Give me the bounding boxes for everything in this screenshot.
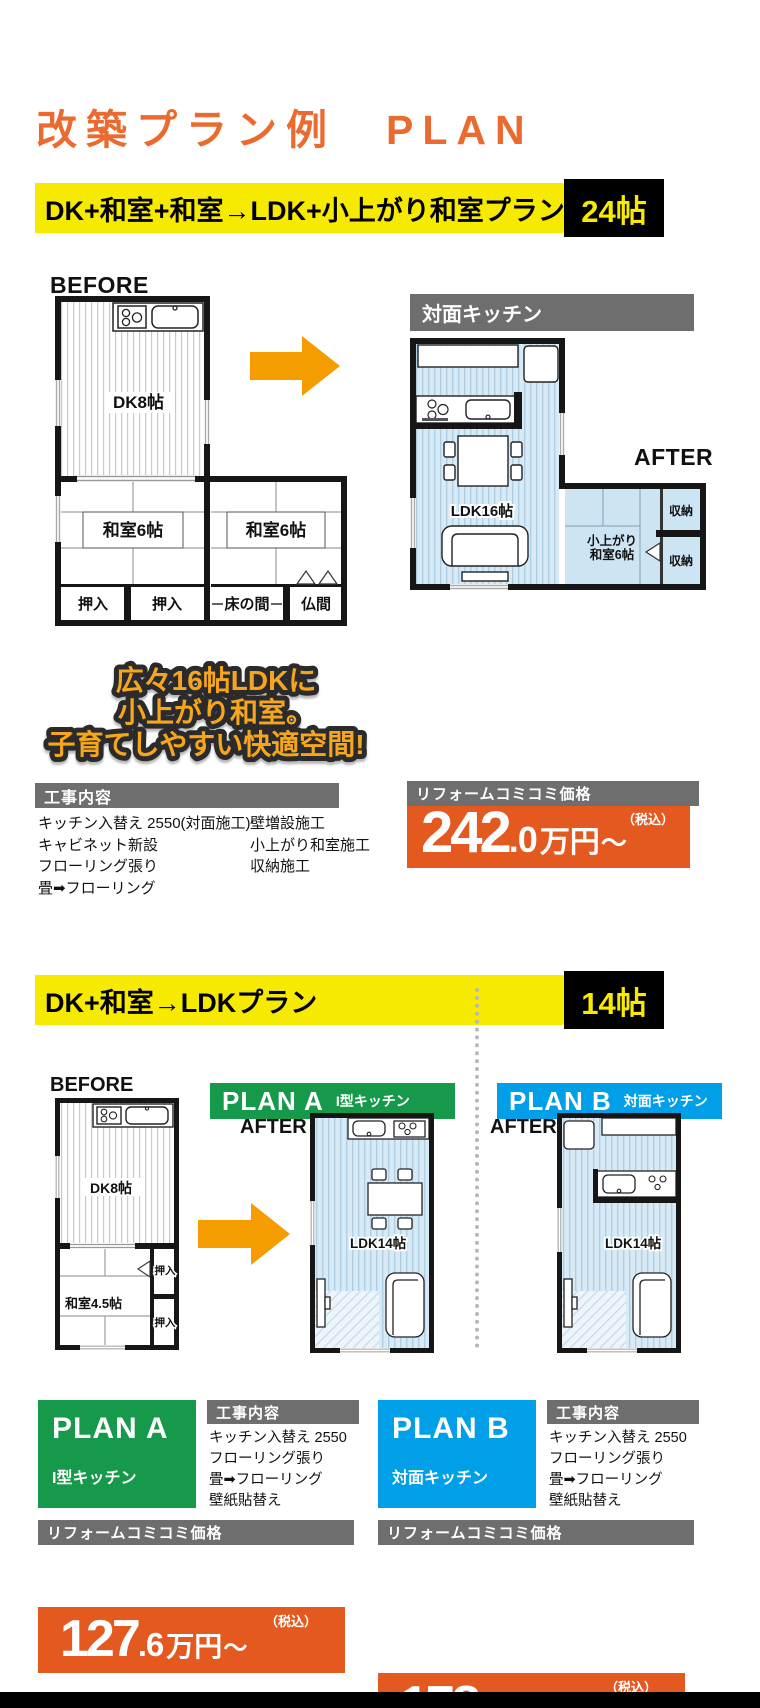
divider (475, 988, 479, 1348)
kitchen-unit-icon (93, 1104, 173, 1127)
page-title: 改築プラン例 PLAN (36, 96, 534, 156)
price-tilde: 〜 (601, 823, 627, 860)
room-label-washitsu1: 和室6帖 (103, 520, 163, 540)
price-unit: 万円 (540, 817, 600, 861)
price-unit: 万円 (166, 1625, 222, 1665)
section2-banner: DK+和室→LDKプラン 14帖 (35, 975, 660, 1025)
catch-copy: 広々16帖LDKに 小上がり和室。 子育てしやすい快適空間! (28, 650, 368, 765)
floorplan-plan-a: LDK14帖 (310, 1113, 434, 1353)
works-item: 壁紙貼替え (549, 1491, 687, 1512)
works-item: キャビネット新設 (38, 835, 251, 857)
floorplan-plan-b: LDK14帖 (557, 1113, 681, 1353)
floorplan-after-1: LDK16帖 小上がり 和室6帖 収納 収納 (410, 338, 706, 590)
before-label-1: BEFORE (50, 272, 149, 299)
room-label-ldk16: LDK16帖 (451, 502, 514, 520)
section2-banner-label: DK+和室→LDKプラン (35, 981, 317, 1020)
plan-a-type: I型キッチン (336, 1091, 410, 1111)
price-main: 127 (60, 1609, 138, 1669)
section1-banner: DK+和室+和室→LDK+小上がり和室プラン 24帖 (35, 183, 660, 233)
works-item: 畳➡フローリング (549, 1470, 687, 1491)
price-tilde: 〜 (223, 1628, 247, 1663)
plan-b-box-type: 対面キッチン (378, 1446, 536, 1488)
room-label-oshiire1: 押入 (155, 1264, 176, 1277)
room-label-koagari-2: 和室6帖 (589, 547, 635, 562)
works-header-1: 工事内容 (35, 783, 339, 808)
door-mark (138, 1261, 150, 1277)
room-label-oshiire1: 押入 (78, 595, 108, 613)
price-header-a: リフォームコミコミ価格 (38, 1520, 354, 1545)
works-item: キッチン入替え 2550 (209, 1428, 347, 1449)
kitchen-counter-icon (348, 1118, 429, 1139)
room-label-ldk14: LDK14帖 (350, 1235, 407, 1251)
room-label-tokonoma: 床の間 (224, 595, 269, 613)
works-item: 壁増設施工 (250, 813, 370, 835)
catch-line-3: 子育てしやすい快適空間! (47, 728, 364, 760)
room-label-ldk14: LDK14帖 (605, 1235, 662, 1251)
arrow-right-icon (198, 1203, 290, 1265)
catch-line-2: 小上がり和室。 (118, 696, 314, 728)
after-kitchen-tag: 対面キッチン (410, 294, 694, 331)
works-col1: キッチン入替え 2550(対面施工) キャビネット新設 フローリング張り 畳➡フ… (38, 813, 251, 899)
arrow-right-icon (250, 336, 340, 396)
works-item: フローリング張り (209, 1449, 347, 1470)
works-list-a: キッチン入替え 2550 フローリング張り 畳➡フローリング 壁紙貼替え (209, 1428, 347, 1512)
works-item: 収納施工 (250, 856, 370, 878)
section2-size-badge: 14帖 (564, 971, 664, 1029)
room-label-oshiire2: 押入 (155, 1316, 176, 1329)
room-label-storage2: 収納 (669, 553, 693, 568)
plan-a-name: PLAN A (210, 1086, 324, 1117)
room-label-storage1: 収納 (669, 503, 693, 518)
before-label-2: BEFORE (50, 1074, 133, 1097)
after-label-b: AFTER (490, 1116, 557, 1139)
works-item: 小上がり和室施工 (250, 835, 370, 857)
room-label-dk: DK8帖 (90, 1180, 132, 1196)
plan-b-type: 対面キッチン (624, 1091, 708, 1111)
catch-line-1: 広々16帖LDKに (116, 665, 317, 696)
price-decimal: .0 (509, 819, 537, 861)
plan-b-box-name: PLAN B (378, 1400, 536, 1446)
works-header-b: 工事内容 (547, 1400, 699, 1424)
plan-a-box-type: I型キッチン (38, 1446, 196, 1488)
room-label-oshiire2: 押入 (152, 595, 182, 613)
room-label-dk: DK8帖 (113, 392, 164, 412)
works-item: 畳➡フローリング (209, 1470, 347, 1491)
works-item: フローリング張り (549, 1449, 687, 1470)
works-header-a: 工事内容 (207, 1400, 359, 1424)
tax-note: （税込） (622, 809, 674, 828)
footer-bar (0, 1692, 760, 1708)
renovation-flyer: 改築プラン例 PLAN DK+和室+和室→LDK+小上がり和室プラン 24帖 B… (0, 0, 760, 1708)
floorplan-before-2: DK8帖 和室4.5帖 押入 押入 (55, 1098, 179, 1350)
plan-b-box: PLAN B 対面キッチン (378, 1400, 536, 1508)
tax-note: （税込） (265, 1611, 317, 1630)
works-item: キッチン入替え 2550 (549, 1428, 687, 1449)
room-label-washitsu2: 和室6帖 (246, 520, 306, 540)
plan-a-box: PLAN A I型キッチン (38, 1400, 196, 1508)
works-item: フローリング張り (38, 856, 251, 878)
works-item: キッチン入替え 2550(対面施工) (38, 813, 251, 835)
room-label-koagari-1: 小上がり (586, 533, 637, 548)
plan-a-box-name: PLAN A (38, 1400, 196, 1446)
section1-banner-label: DK+和室+和室→LDK+小上がり和室プラン (35, 189, 565, 228)
room-label-washitsu: 和室4.5帖 (65, 1296, 122, 1311)
works-item: 畳➡フローリング (38, 878, 251, 900)
section1-size-badge: 24帖 (564, 179, 664, 237)
room-label-butsuma: 仏間 (301, 596, 331, 613)
price-header-b: リフォームコミコミ価格 (378, 1520, 694, 1545)
works-col2: 壁増設施工 小上がり和室施工 収納施工 (250, 813, 370, 878)
price-box-1: （税込） 242 .0 万円 〜 (407, 806, 690, 868)
after-label-a: AFTER (240, 1116, 307, 1139)
price-box-a: （税込） 127 .6 万円 〜 (38, 1607, 345, 1673)
works-item: 壁紙貼替え (209, 1491, 347, 1512)
plan-b-name: PLAN B (497, 1086, 612, 1117)
works-list-b: キッチン入替え 2550 フローリング張り 畳➡フローリング 壁紙貼替え (549, 1428, 687, 1512)
price-main: 242 (421, 799, 509, 866)
price-decimal: .6 (138, 1626, 164, 1664)
